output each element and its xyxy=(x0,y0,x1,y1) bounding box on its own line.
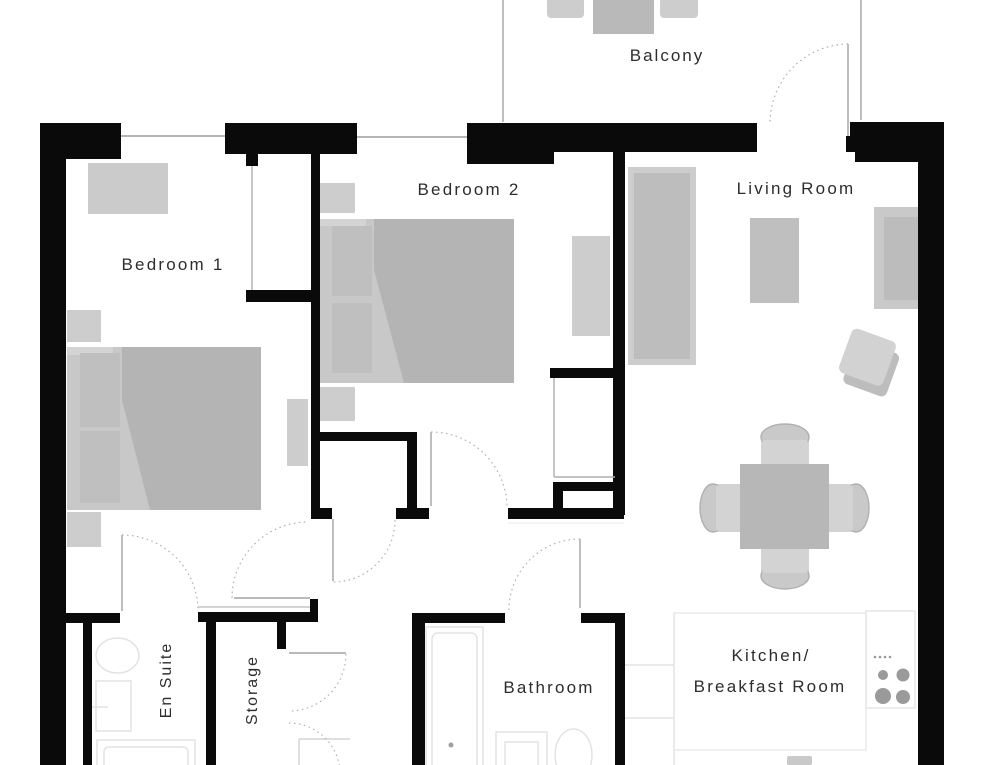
svg-text:Bedroom 2: Bedroom 2 xyxy=(418,180,521,199)
svg-text:Balcony: Balcony xyxy=(630,46,704,65)
svg-text:Bedroom 1: Bedroom 1 xyxy=(122,255,225,274)
svg-text:En Suite: En Suite xyxy=(158,642,175,718)
svg-text:Breakfast Room: Breakfast Room xyxy=(694,677,847,696)
svg-text:Kitchen/: Kitchen/ xyxy=(731,646,810,665)
svg-text:Living Room: Living Room xyxy=(737,179,856,198)
svg-text:Bathroom: Bathroom xyxy=(503,678,594,697)
svg-text:Storage: Storage xyxy=(244,655,261,725)
